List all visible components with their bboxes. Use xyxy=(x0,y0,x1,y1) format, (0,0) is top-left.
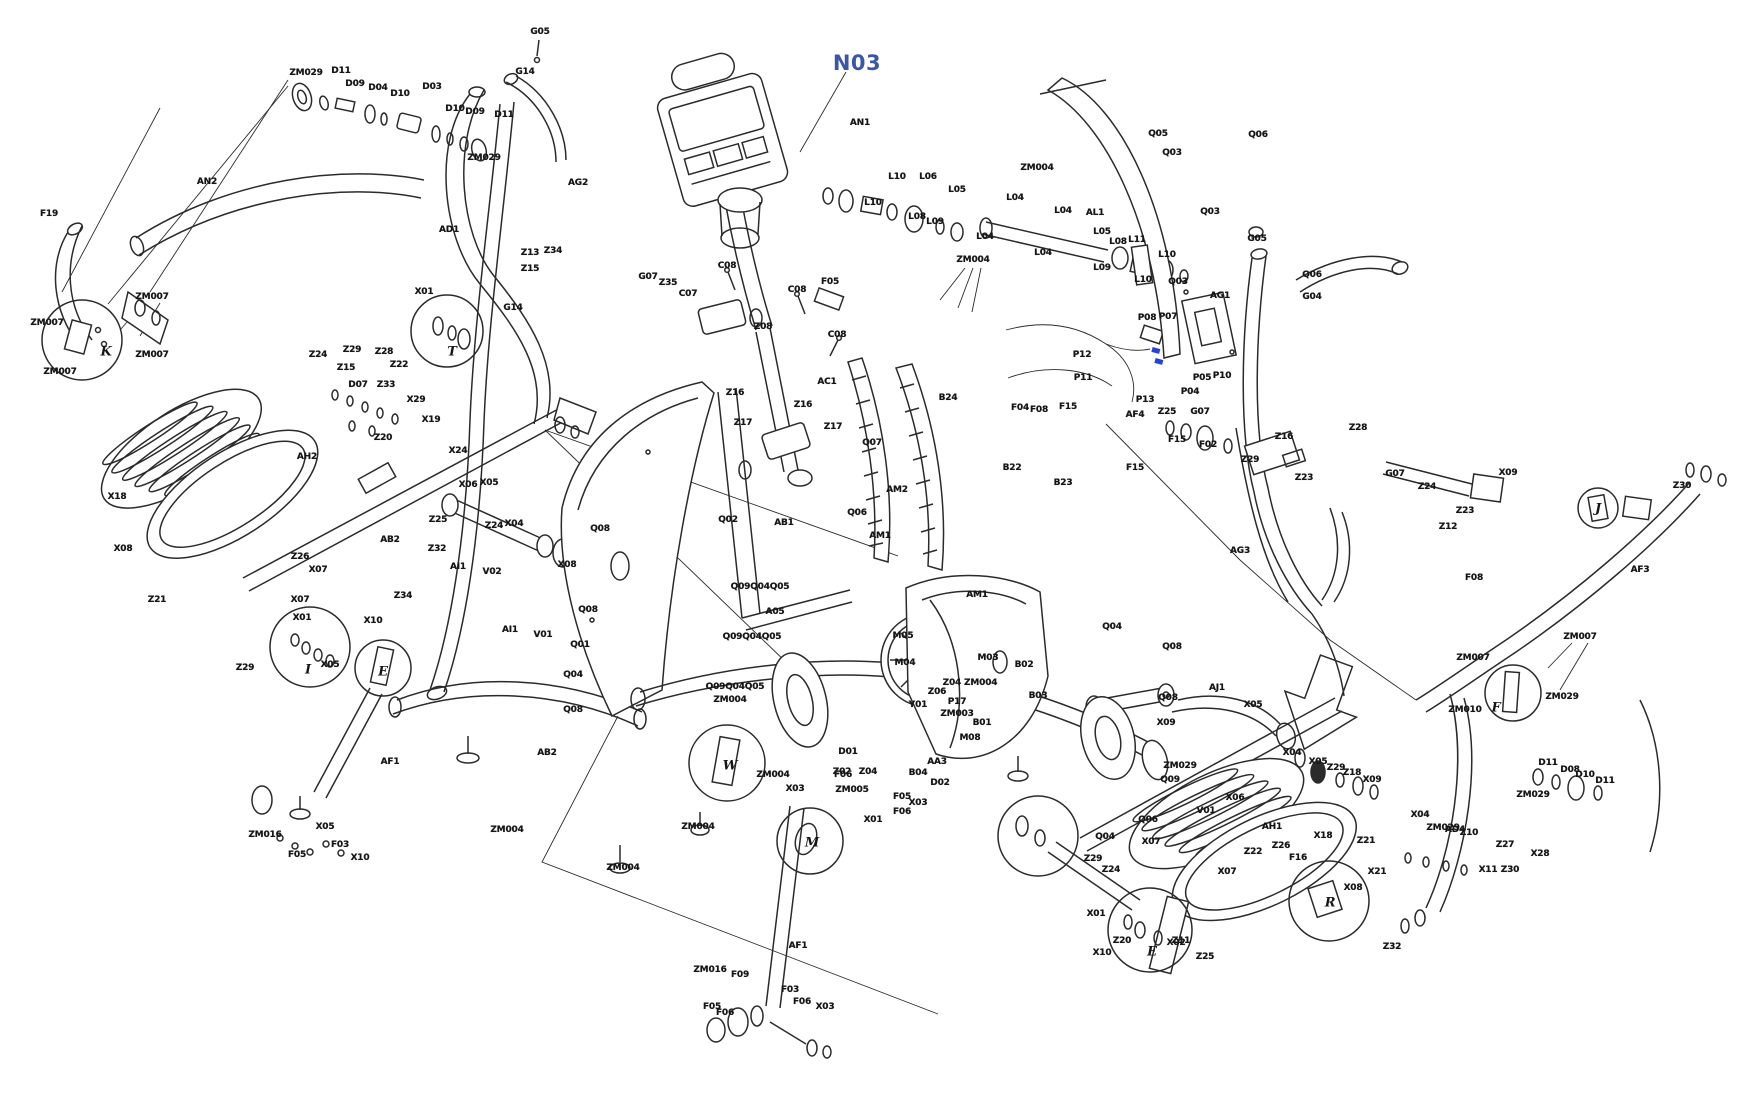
part-label: Z22 xyxy=(390,360,408,370)
part-label: B23 xyxy=(1054,478,1073,488)
part-label: AB2 xyxy=(380,535,400,545)
part-label: B01 xyxy=(973,718,992,728)
part-label: X08 xyxy=(1344,883,1363,893)
part-label: ZM010 xyxy=(1448,705,1481,715)
part-label: X11 xyxy=(1479,865,1498,875)
part-label: Z34 xyxy=(544,246,562,256)
part-label: ZM029 xyxy=(1516,790,1549,800)
part-label: Z13 xyxy=(521,248,539,258)
part-label: ZM003 xyxy=(940,709,973,719)
part-label: Z22 xyxy=(1244,847,1262,857)
part-label: G14 xyxy=(515,67,534,77)
part-label: F15 xyxy=(1059,402,1077,412)
part-label: ZM004 xyxy=(490,825,523,835)
part-label: Q08 xyxy=(590,524,610,534)
part-label: Z33 xyxy=(377,380,395,390)
part-label: X01 xyxy=(415,287,434,297)
part-label: Z29 xyxy=(1241,455,1259,465)
part-label: X07 xyxy=(309,565,328,575)
part-label: Z16 xyxy=(726,388,744,398)
part-label: Z26 xyxy=(1272,841,1290,851)
part-label: AH1 xyxy=(1262,822,1282,832)
part-label: AL1 xyxy=(1086,208,1104,218)
part-label: P17 xyxy=(948,697,967,707)
part-label: Q07 xyxy=(862,438,882,448)
part-label: F04 xyxy=(1011,403,1029,413)
part-label: F05 xyxy=(821,277,839,287)
part-label: Z23 xyxy=(1295,473,1313,483)
part-label: ZM007 xyxy=(30,318,63,328)
part-label: P07 xyxy=(1159,312,1178,322)
part-label: Z20 xyxy=(374,433,392,443)
part-label: L04 xyxy=(1034,248,1052,258)
part-label: L04 xyxy=(1006,193,1024,203)
part-label: Z32 xyxy=(428,544,446,554)
part-label: X09 xyxy=(1363,775,1382,785)
part-label: M04 xyxy=(895,658,916,668)
part-label: ZM029 xyxy=(289,68,322,78)
part-label: F03 xyxy=(331,840,349,850)
part-label: Z04 ZM004 xyxy=(943,678,998,688)
part-label: AF3 xyxy=(1631,565,1650,575)
part-label: AM1 xyxy=(869,531,891,541)
part-label: L08 xyxy=(1109,237,1127,247)
part-label: F09 xyxy=(731,970,749,980)
part-label: X21 xyxy=(1368,867,1387,877)
part-label: D11 xyxy=(1538,758,1557,768)
part-label: F08 xyxy=(1465,573,1483,583)
part-label: Q08 xyxy=(1158,693,1178,703)
part-label: Q09Q04Q05 xyxy=(731,582,790,592)
part-label: L08 xyxy=(908,212,926,222)
part-label: L09 xyxy=(1093,263,1111,273)
part-label: ZM004 xyxy=(756,770,789,780)
part-label: Z28 xyxy=(375,347,393,357)
part-label: Z08 xyxy=(754,322,772,332)
part-label: X18 xyxy=(108,492,127,502)
part-label: AG2 xyxy=(568,178,588,188)
part-label: AH2 xyxy=(297,452,317,462)
part-label: Z20 xyxy=(1113,936,1131,946)
part-label: Z16 xyxy=(794,400,812,410)
part-label: Z25 xyxy=(1158,407,1176,417)
detail-callout-letter: T xyxy=(447,345,456,360)
part-label: X03 xyxy=(786,784,805,794)
part-label: AF4 xyxy=(1126,410,1145,420)
part-label: Z24 xyxy=(1102,865,1120,875)
part-label: X04 xyxy=(505,519,524,529)
part-label: D11 xyxy=(331,66,350,76)
part-label: V02 xyxy=(483,567,502,577)
part-label: Z25 xyxy=(429,515,447,525)
part-label: X06 xyxy=(459,480,478,490)
part-label: ZM016 xyxy=(248,830,281,840)
detail-callout-letter: I xyxy=(305,663,311,678)
part-label: A05 xyxy=(766,607,785,617)
part-label: F06 xyxy=(716,1008,734,1018)
part-label: Q04 xyxy=(1095,832,1115,842)
part-label: AC1 xyxy=(817,377,836,387)
part-label: AI1 xyxy=(502,625,518,635)
part-label: B22 xyxy=(1003,463,1022,473)
part-label: D03 xyxy=(422,82,441,92)
part-label: C08 xyxy=(718,261,737,271)
part-label: X08 xyxy=(558,560,577,570)
detail-callout-letter: J xyxy=(1595,502,1601,517)
part-label: Z29 xyxy=(1084,854,1102,864)
part-label: L04 xyxy=(1054,206,1072,216)
part-label: M05 xyxy=(893,631,914,641)
part-label: X01 xyxy=(864,815,883,825)
part-label: AJ1 xyxy=(1209,683,1225,693)
part-label: D02 xyxy=(930,778,949,788)
part-label: F16 xyxy=(1289,853,1307,863)
part-label: X19 xyxy=(422,415,441,425)
part-label: Q09 xyxy=(1160,775,1180,785)
part-label: Z24 xyxy=(1418,482,1436,492)
part-label: L10 xyxy=(1134,275,1152,285)
part-label: Z26 xyxy=(291,552,309,562)
part-label: AG3 xyxy=(1230,546,1250,556)
part-label: L11 xyxy=(1128,235,1146,245)
part-label: V01 xyxy=(1197,806,1216,816)
part-label: Q04 xyxy=(1102,622,1122,632)
part-label: X05 xyxy=(1244,700,1263,710)
part-label: ZM029 xyxy=(1163,761,1196,771)
part-label: M08 xyxy=(960,733,981,743)
part-label: G07 xyxy=(1385,469,1404,479)
part-label: X28 xyxy=(1531,849,1550,859)
part-label: Q06 xyxy=(1138,815,1158,825)
part-label: Z29 xyxy=(236,663,254,673)
part-label: AN1 xyxy=(850,118,870,128)
part-label: X09 xyxy=(1157,718,1176,728)
part-label: X03 xyxy=(816,1002,835,1012)
part-label: D04 xyxy=(368,83,387,93)
part-label: X09 xyxy=(1499,468,1518,478)
part-label: G05 xyxy=(1247,234,1266,244)
part-label: Z30 xyxy=(1501,865,1519,875)
part-label: V01 xyxy=(534,630,553,640)
part-label: Y01 xyxy=(909,700,927,710)
part-label: Z29 xyxy=(343,345,361,355)
part-label: G07 xyxy=(638,272,657,282)
part-label: AF1 xyxy=(789,941,808,951)
part-label: L05 xyxy=(1093,227,1111,237)
part-label: D01 xyxy=(838,747,857,757)
part-label: F03 xyxy=(781,985,799,995)
part-label: X04 xyxy=(1411,810,1430,820)
part-label: X01 xyxy=(1087,909,1106,919)
part-label: ZM007 xyxy=(135,350,168,360)
part-label: X03 xyxy=(909,798,928,808)
part-label: L05 xyxy=(948,185,966,195)
label-layer: N03ZM029D11D09D04D10D03D10D09D11ZM029G05… xyxy=(0,0,1743,1100)
part-label: Q01 xyxy=(570,640,590,650)
part-label: P12 xyxy=(1073,350,1092,360)
part-label: G05 xyxy=(530,27,549,37)
part-label: F06 xyxy=(793,997,811,1007)
part-label: G04 xyxy=(1302,292,1321,302)
part-label: Q06 xyxy=(847,508,867,518)
part-label: AB1 xyxy=(774,518,794,528)
part-label: AM1 xyxy=(966,590,988,600)
part-label: X05 xyxy=(321,660,340,670)
part-label: Z24 xyxy=(485,521,503,531)
part-label: Z15 xyxy=(521,264,539,274)
part-label: B04 xyxy=(909,768,928,778)
part-label: D11 xyxy=(1595,776,1614,786)
part-label: ZM005 xyxy=(835,785,868,795)
part-label: Z27 xyxy=(1496,840,1514,850)
part-label: D10 xyxy=(390,89,409,99)
part-label: AI1 xyxy=(450,562,466,572)
part-label: Z28 xyxy=(1349,423,1367,433)
part-label: D10 xyxy=(1575,770,1594,780)
part-label: ZM004 xyxy=(713,695,746,705)
part-label: C08 xyxy=(788,285,807,295)
part-label: AD4 xyxy=(1445,825,1465,835)
part-label: Q04 xyxy=(563,670,583,680)
part-label: ZM007 xyxy=(1563,632,1596,642)
part-label: Q02 xyxy=(718,515,738,525)
part-label: ZM004 xyxy=(956,255,989,265)
part-label: Z34 xyxy=(394,591,412,601)
part-label: AA3 xyxy=(927,757,947,767)
detail-callout-letter: M xyxy=(805,836,819,851)
part-label: Q08 xyxy=(578,605,598,615)
part-label: C07 xyxy=(679,289,698,299)
part-label: AM2 xyxy=(886,485,908,495)
part-label: Q06 xyxy=(1248,130,1268,140)
part-label: D09 xyxy=(345,79,364,89)
part-label: B02 xyxy=(1015,660,1034,670)
part-label: Z18 xyxy=(1343,768,1361,778)
detail-callout-letter: E xyxy=(378,665,388,680)
part-label: B03 xyxy=(1029,691,1048,701)
part-label: P10 xyxy=(1213,371,1232,381)
part-label: X29 xyxy=(407,395,426,405)
part-label: ZM004 xyxy=(681,822,714,832)
part-label: F06 xyxy=(893,807,911,817)
part-label: F15 xyxy=(1126,463,1144,473)
part-label: X18 xyxy=(1314,831,1333,841)
part-label: F06 xyxy=(834,770,852,780)
part-label: AF1 xyxy=(381,757,400,767)
part-label: Q08 xyxy=(563,705,583,715)
part-label: Z04 xyxy=(859,767,877,777)
part-label: L04 xyxy=(976,232,994,242)
part-label: Q09Q04Q05 xyxy=(723,632,782,642)
part-label: X24 xyxy=(449,446,468,456)
part-label: Z30 xyxy=(1673,481,1691,491)
part-label: ZM016 xyxy=(693,965,726,975)
part-label: L10 xyxy=(864,198,882,208)
highlighted-part-label: N03 xyxy=(833,51,881,75)
part-label: X05 xyxy=(316,822,335,832)
part-label: Q05 xyxy=(1148,129,1168,139)
part-label: Z17 xyxy=(734,418,752,428)
part-label: P13 xyxy=(1136,395,1155,405)
part-label: Q03 xyxy=(1168,277,1188,287)
part-label: Q09Q04Q05 xyxy=(706,682,765,692)
part-label: X07 xyxy=(1218,867,1237,877)
part-label: X05 xyxy=(480,478,499,488)
part-label: Q03 xyxy=(1200,207,1220,217)
part-label: L10 xyxy=(1158,250,1176,260)
part-label: F05 xyxy=(288,850,306,860)
part-label: Z17 xyxy=(824,422,842,432)
part-label: Z21 xyxy=(1357,836,1375,846)
part-label: Z06 xyxy=(928,687,946,697)
part-label: D07 xyxy=(348,380,367,390)
part-label: ZM007 xyxy=(43,367,76,377)
part-label: Q08 xyxy=(1162,642,1182,652)
part-label: F08 xyxy=(1030,405,1048,415)
part-label: Z12 xyxy=(1439,522,1457,532)
part-label: P11 xyxy=(1074,373,1093,383)
part-label: P04 xyxy=(1181,387,1200,397)
part-label: D09 xyxy=(465,107,484,117)
part-label: M03 xyxy=(978,653,999,663)
part-label: D11 xyxy=(494,110,513,120)
part-label: L10 xyxy=(888,172,906,182)
part-label: F19 xyxy=(40,209,58,219)
part-label: AG1 xyxy=(1210,291,1230,301)
part-label: X10 xyxy=(1093,948,1112,958)
detail-callout-letter: E xyxy=(1147,945,1157,960)
part-label: ZM029 xyxy=(467,153,500,163)
part-label: Z24 xyxy=(309,350,327,360)
part-label: Z11 xyxy=(1172,936,1190,946)
part-label: ZM007 xyxy=(1456,653,1489,663)
part-label: X04 xyxy=(1283,748,1302,758)
part-label: AN2 xyxy=(197,177,217,187)
detail-callout-letter: W xyxy=(723,759,737,774)
exploded-diagram: N03ZM029D11D09D04D10D03D10D09D11ZM029G05… xyxy=(0,0,1743,1100)
part-label: Z32 xyxy=(1383,942,1401,952)
part-label: B24 xyxy=(939,393,958,403)
part-label: P08 xyxy=(1138,313,1157,323)
detail-callout-letter: F xyxy=(1491,701,1500,716)
part-label: ZM029 xyxy=(1545,692,1578,702)
part-label: P05 xyxy=(1193,373,1212,383)
part-label: F15 xyxy=(1168,435,1186,445)
part-label: ZM004 xyxy=(606,863,639,873)
part-label: C08 xyxy=(828,330,847,340)
part-label: X10 xyxy=(351,853,370,863)
part-label: L06 xyxy=(919,172,937,182)
part-label: ZM004 xyxy=(1020,163,1053,173)
part-label: AB2 xyxy=(537,748,557,758)
part-label: Z21 xyxy=(148,595,166,605)
part-label: Z35 xyxy=(659,278,677,288)
part-label: AD1 xyxy=(439,225,459,235)
part-label: X06 xyxy=(1226,793,1245,803)
part-label: X07 xyxy=(1142,837,1161,847)
part-label: Z25 xyxy=(1196,952,1214,962)
detail-callout-letter: K xyxy=(100,345,111,360)
detail-callout-letter: R xyxy=(1325,896,1336,911)
part-label: L09 xyxy=(926,217,944,227)
part-label: D10 xyxy=(445,104,464,114)
part-label: X10 xyxy=(364,616,383,626)
part-label: X05 xyxy=(1309,757,1328,767)
part-label: G07 xyxy=(1190,407,1209,417)
part-label: Q03 xyxy=(1162,148,1182,158)
part-label: X08 xyxy=(114,544,133,554)
part-label: X01 xyxy=(293,613,312,623)
part-label: Z16 xyxy=(1275,432,1293,442)
part-label: X07 xyxy=(291,595,310,605)
part-label: Z23 xyxy=(1456,506,1474,516)
part-label: ZM007 xyxy=(135,292,168,302)
part-label: Z15 xyxy=(337,363,355,373)
part-label: F02 xyxy=(1199,440,1217,450)
part-label: Q06 xyxy=(1302,270,1322,280)
part-label: G14 xyxy=(503,303,522,313)
